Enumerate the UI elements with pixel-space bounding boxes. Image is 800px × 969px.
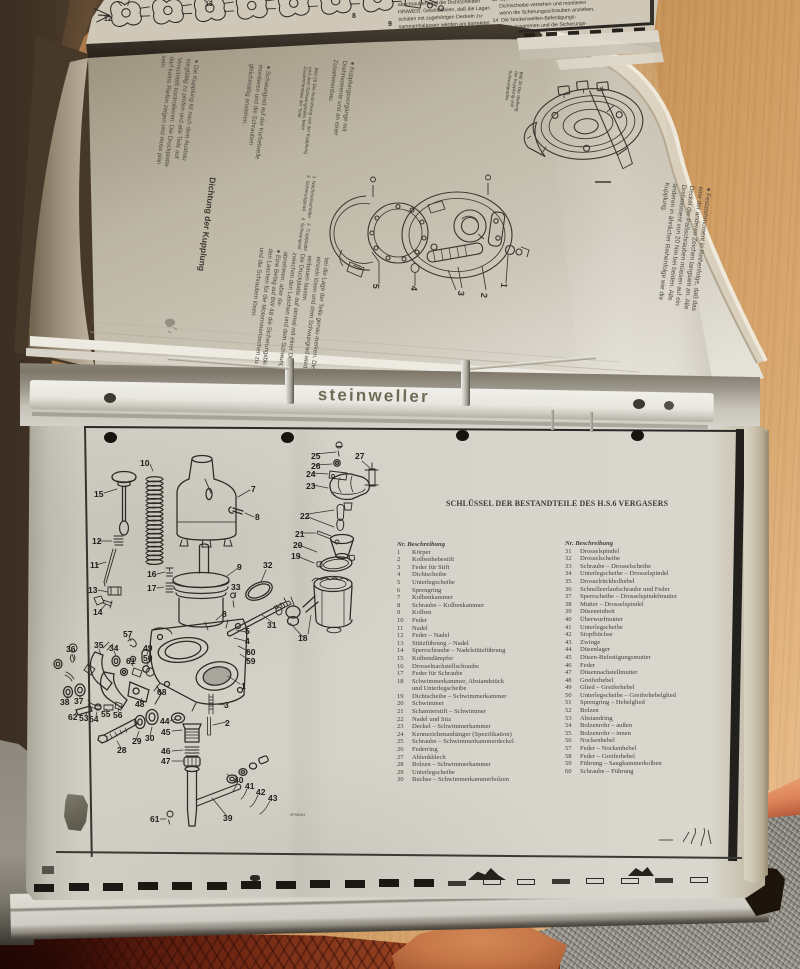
- svg-text:1: 1: [241, 681, 246, 691]
- svg-text:40: 40: [234, 775, 244, 785]
- svg-text:53: 53: [79, 713, 89, 723]
- svg-text:55: 55: [101, 709, 111, 719]
- svg-text:9: 9: [237, 562, 242, 572]
- svg-text:31: 31: [267, 620, 277, 630]
- svg-text:45: 45: [161, 727, 171, 737]
- svg-text:47: 47: [161, 756, 171, 766]
- svg-text:54: 54: [89, 714, 99, 724]
- svg-text:42: 42: [256, 787, 266, 797]
- svg-text:20: 20: [293, 540, 303, 550]
- svg-text:8: 8: [222, 609, 227, 619]
- svg-text:29: 29: [132, 736, 142, 746]
- svg-text:39: 39: [223, 813, 233, 823]
- svg-text:5: 5: [245, 626, 250, 636]
- svg-text:3: 3: [224, 700, 229, 710]
- svg-text:36: 36: [66, 644, 76, 654]
- svg-text:17: 17: [147, 583, 157, 593]
- svg-text:12: 12: [92, 536, 102, 546]
- svg-text:28: 28: [117, 745, 127, 755]
- svg-text:43: 43: [268, 793, 278, 803]
- svg-text:50: 50: [143, 653, 153, 663]
- svg-text:49: 49: [143, 643, 153, 653]
- svg-text:16: 16: [147, 569, 157, 579]
- svg-text:11: 11: [90, 560, 99, 570]
- svg-text:30: 30: [145, 733, 155, 743]
- svg-text:33: 33: [231, 582, 241, 592]
- svg-text:32: 32: [263, 560, 273, 570]
- svg-text:15: 15: [94, 489, 104, 499]
- svg-text:19: 19: [291, 551, 301, 561]
- svg-text:10: 10: [140, 458, 150, 468]
- svg-text:68: 68: [157, 687, 167, 697]
- svg-text:24: 24: [306, 469, 316, 479]
- svg-text:34: 34: [109, 643, 119, 653]
- svg-text:44: 44: [160, 716, 170, 726]
- svg-text:18: 18: [298, 633, 308, 643]
- svg-text:59: 59: [246, 656, 256, 666]
- svg-text:2: 2: [225, 718, 230, 728]
- svg-text:61: 61: [150, 814, 160, 824]
- svg-text:27: 27: [355, 451, 365, 461]
- svg-text:7: 7: [251, 484, 256, 494]
- svg-text:22: 22: [300, 511, 310, 521]
- svg-text:21: 21: [295, 529, 305, 539]
- svg-text:41: 41: [245, 781, 255, 791]
- svg-text:35: 35: [94, 640, 104, 650]
- svg-text:14: 14: [93, 607, 103, 617]
- svg-text:4: 4: [245, 636, 250, 646]
- svg-text:62: 62: [68, 712, 78, 722]
- svg-text:56: 56: [113, 710, 123, 720]
- svg-text:8: 8: [255, 512, 260, 522]
- svg-text:37: 37: [74, 696, 84, 706]
- svg-text:13: 13: [88, 585, 98, 595]
- svg-text:57: 57: [123, 629, 133, 639]
- svg-text:SP98G84: SP98G84: [290, 813, 305, 817]
- svg-text:46: 46: [161, 746, 171, 756]
- svg-text:25: 25: [311, 451, 321, 461]
- svg-text:61: 61: [126, 656, 136, 666]
- svg-text:48: 48: [135, 699, 145, 709]
- svg-text:38: 38: [60, 697, 70, 707]
- svg-text:23: 23: [306, 481, 316, 491]
